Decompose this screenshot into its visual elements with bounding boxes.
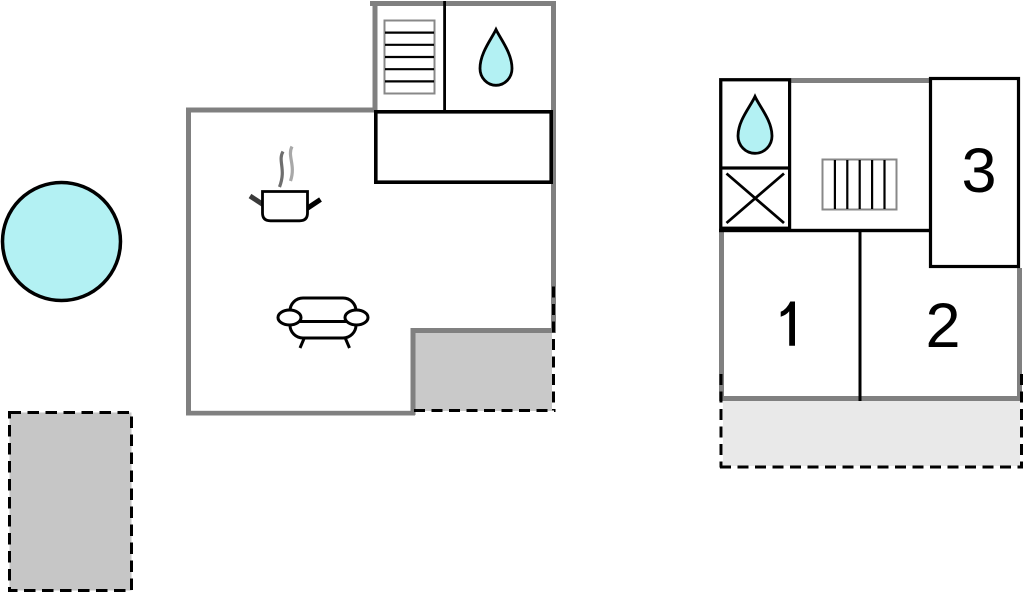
svg-text:3: 3 (961, 136, 996, 206)
svg-text:2: 2 (925, 291, 960, 361)
